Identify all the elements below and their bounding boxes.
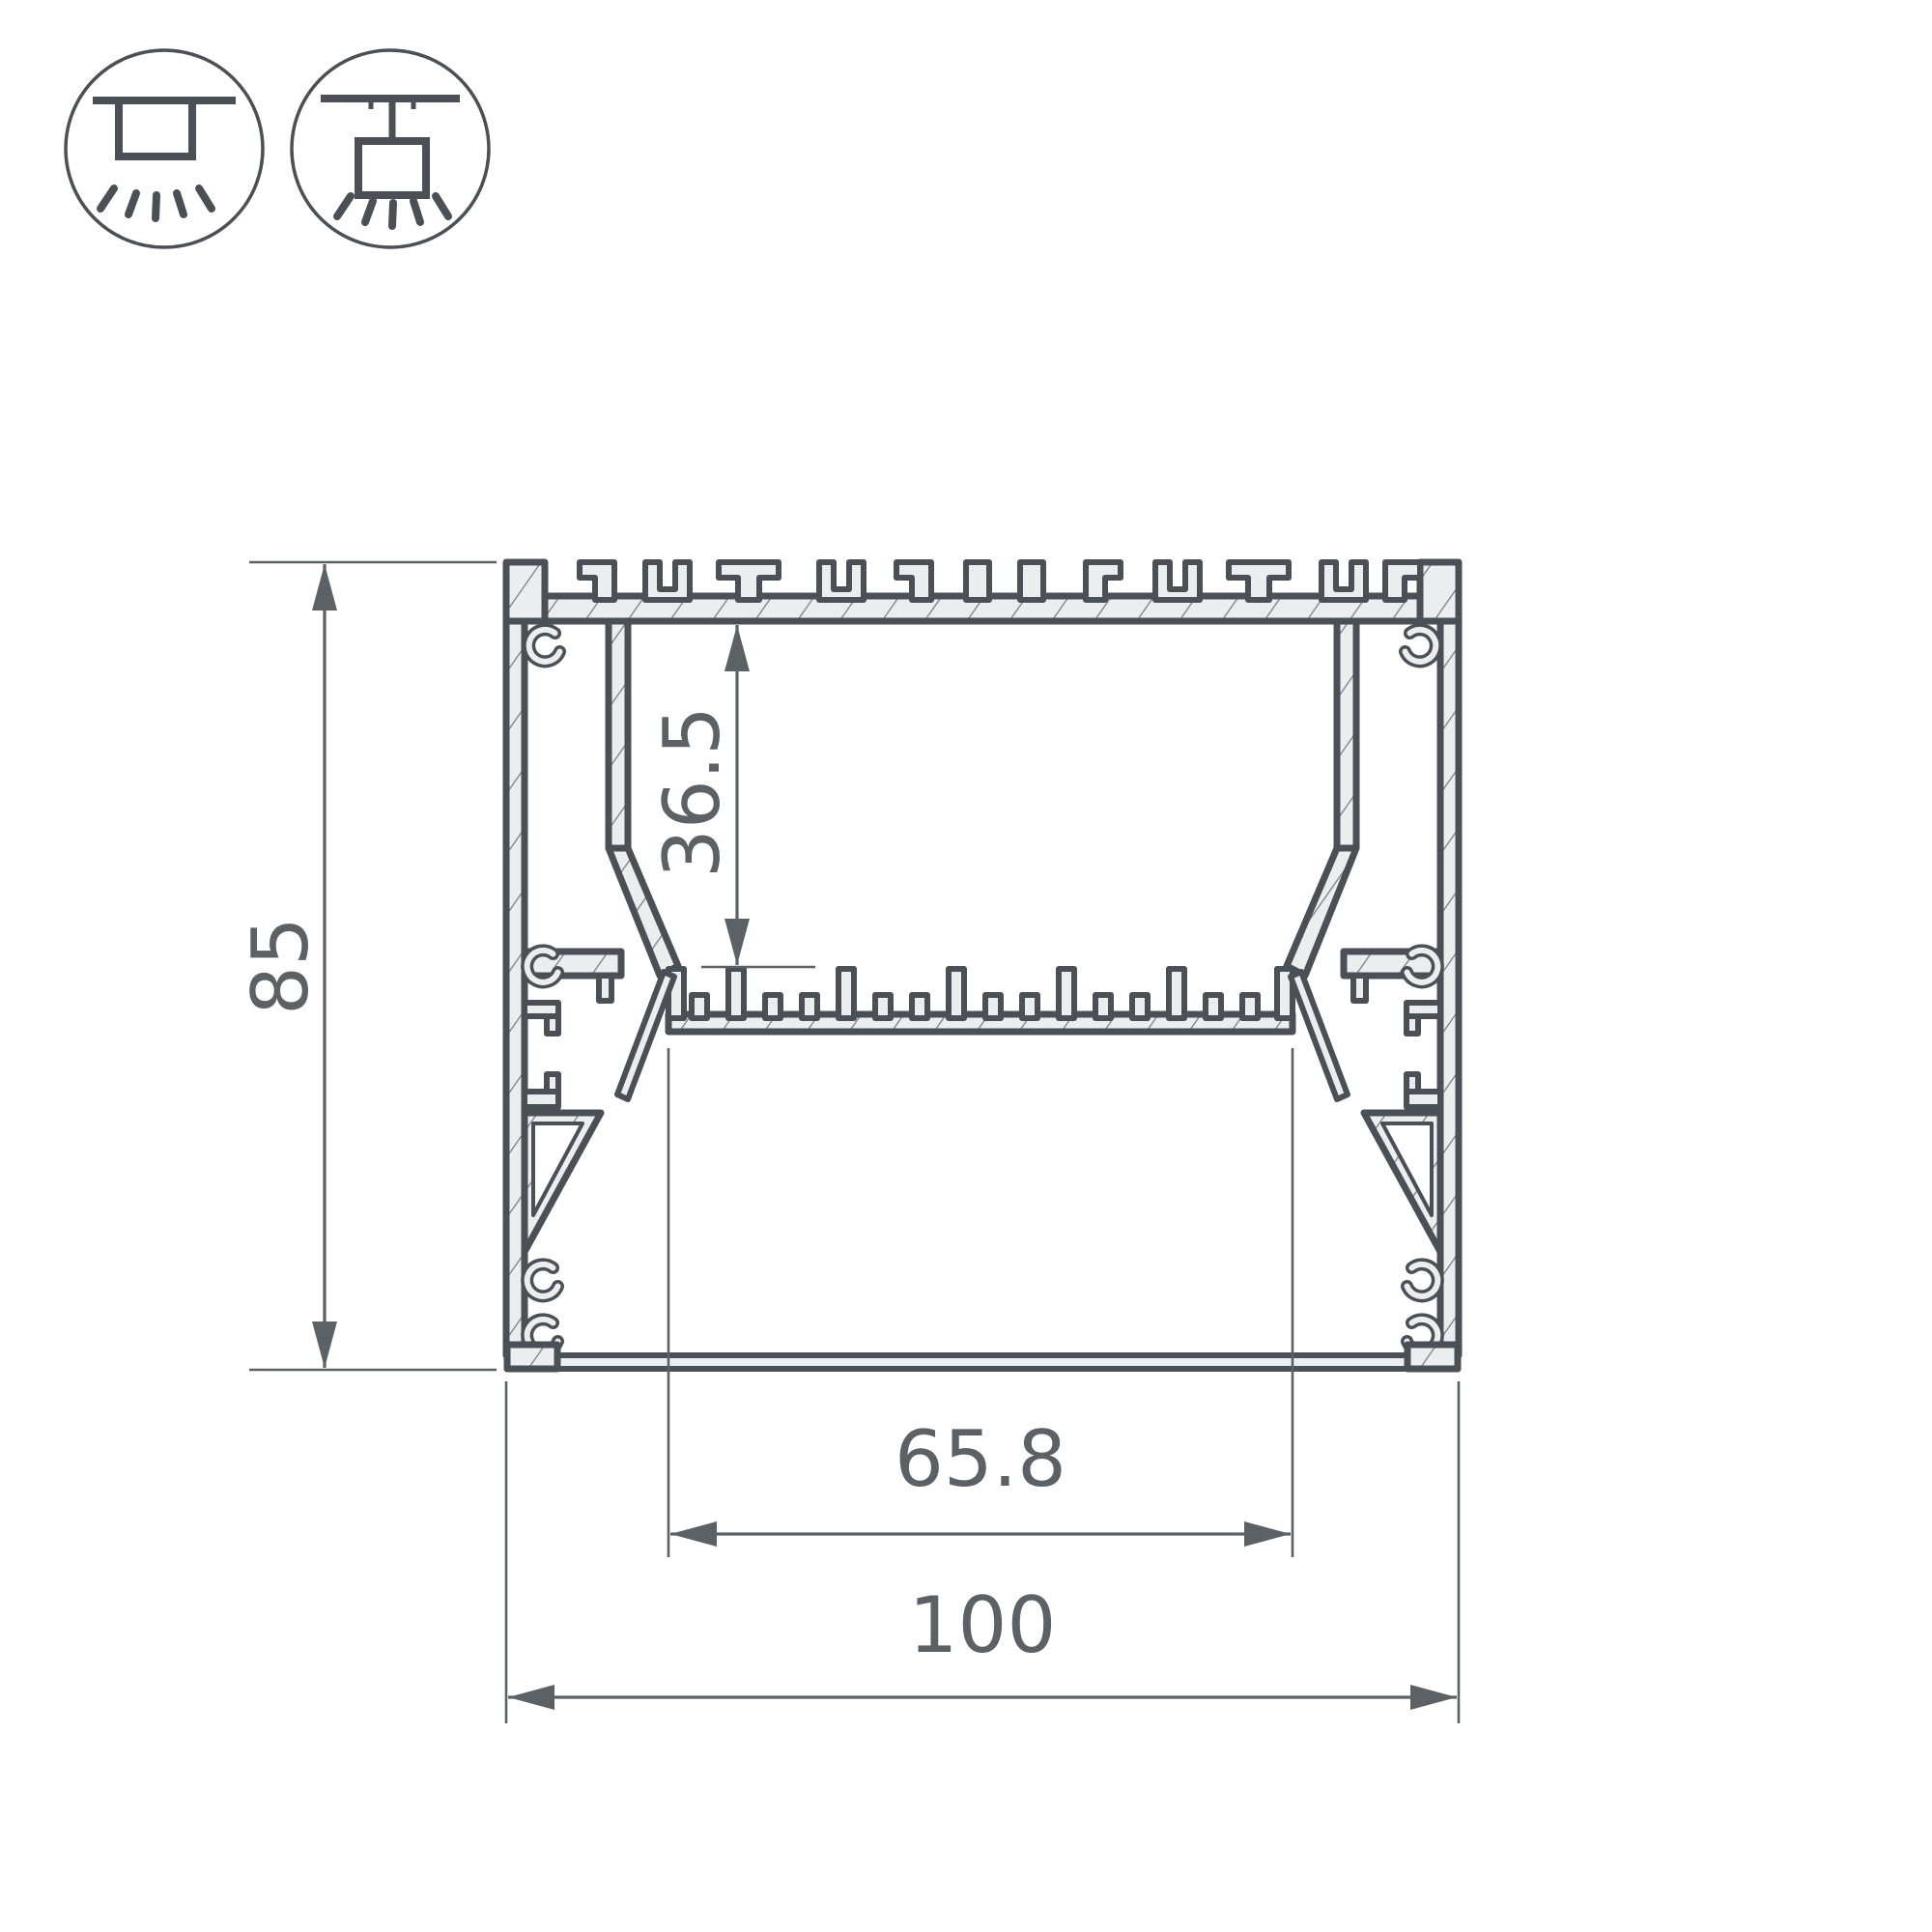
dimension-label-overall-width: 100	[909, 1580, 1057, 1670]
luminaire-box	[119, 100, 192, 156]
pendant-mount-icon	[292, 50, 489, 247]
dimension-cavity-depth: 36.5	[647, 625, 815, 967]
dimension-opening-width: 65.8	[668, 1048, 1293, 1557]
dimension-label-height: 85	[236, 917, 326, 1015]
mount-icons	[66, 50, 489, 247]
top-heatsink-plate	[506, 562, 1459, 621]
luminaire-box	[358, 141, 426, 195]
shelf-ribs	[668, 969, 1293, 1018]
dimension-label-cavity-depth: 36.5	[647, 706, 737, 878]
drawing-canvas: 85 36.5 65.8 100	[0, 0, 1932, 1932]
dimension-overall-height: 85	[236, 562, 497, 1370]
dimension-label-opening-width: 65.8	[895, 1414, 1066, 1504]
corner-gussets	[525, 1113, 1440, 1252]
light-rays	[337, 196, 448, 226]
surface-mount-icon	[66, 50, 263, 247]
icon-circle	[66, 50, 263, 247]
middle-shelf	[668, 969, 1293, 1032]
profile-body	[506, 562, 1459, 1369]
bottom-plate	[507, 1345, 1458, 1369]
profile-technical-drawing: 85 36.5 65.8 100	[0, 0, 1932, 1932]
light-rays	[100, 188, 212, 218]
